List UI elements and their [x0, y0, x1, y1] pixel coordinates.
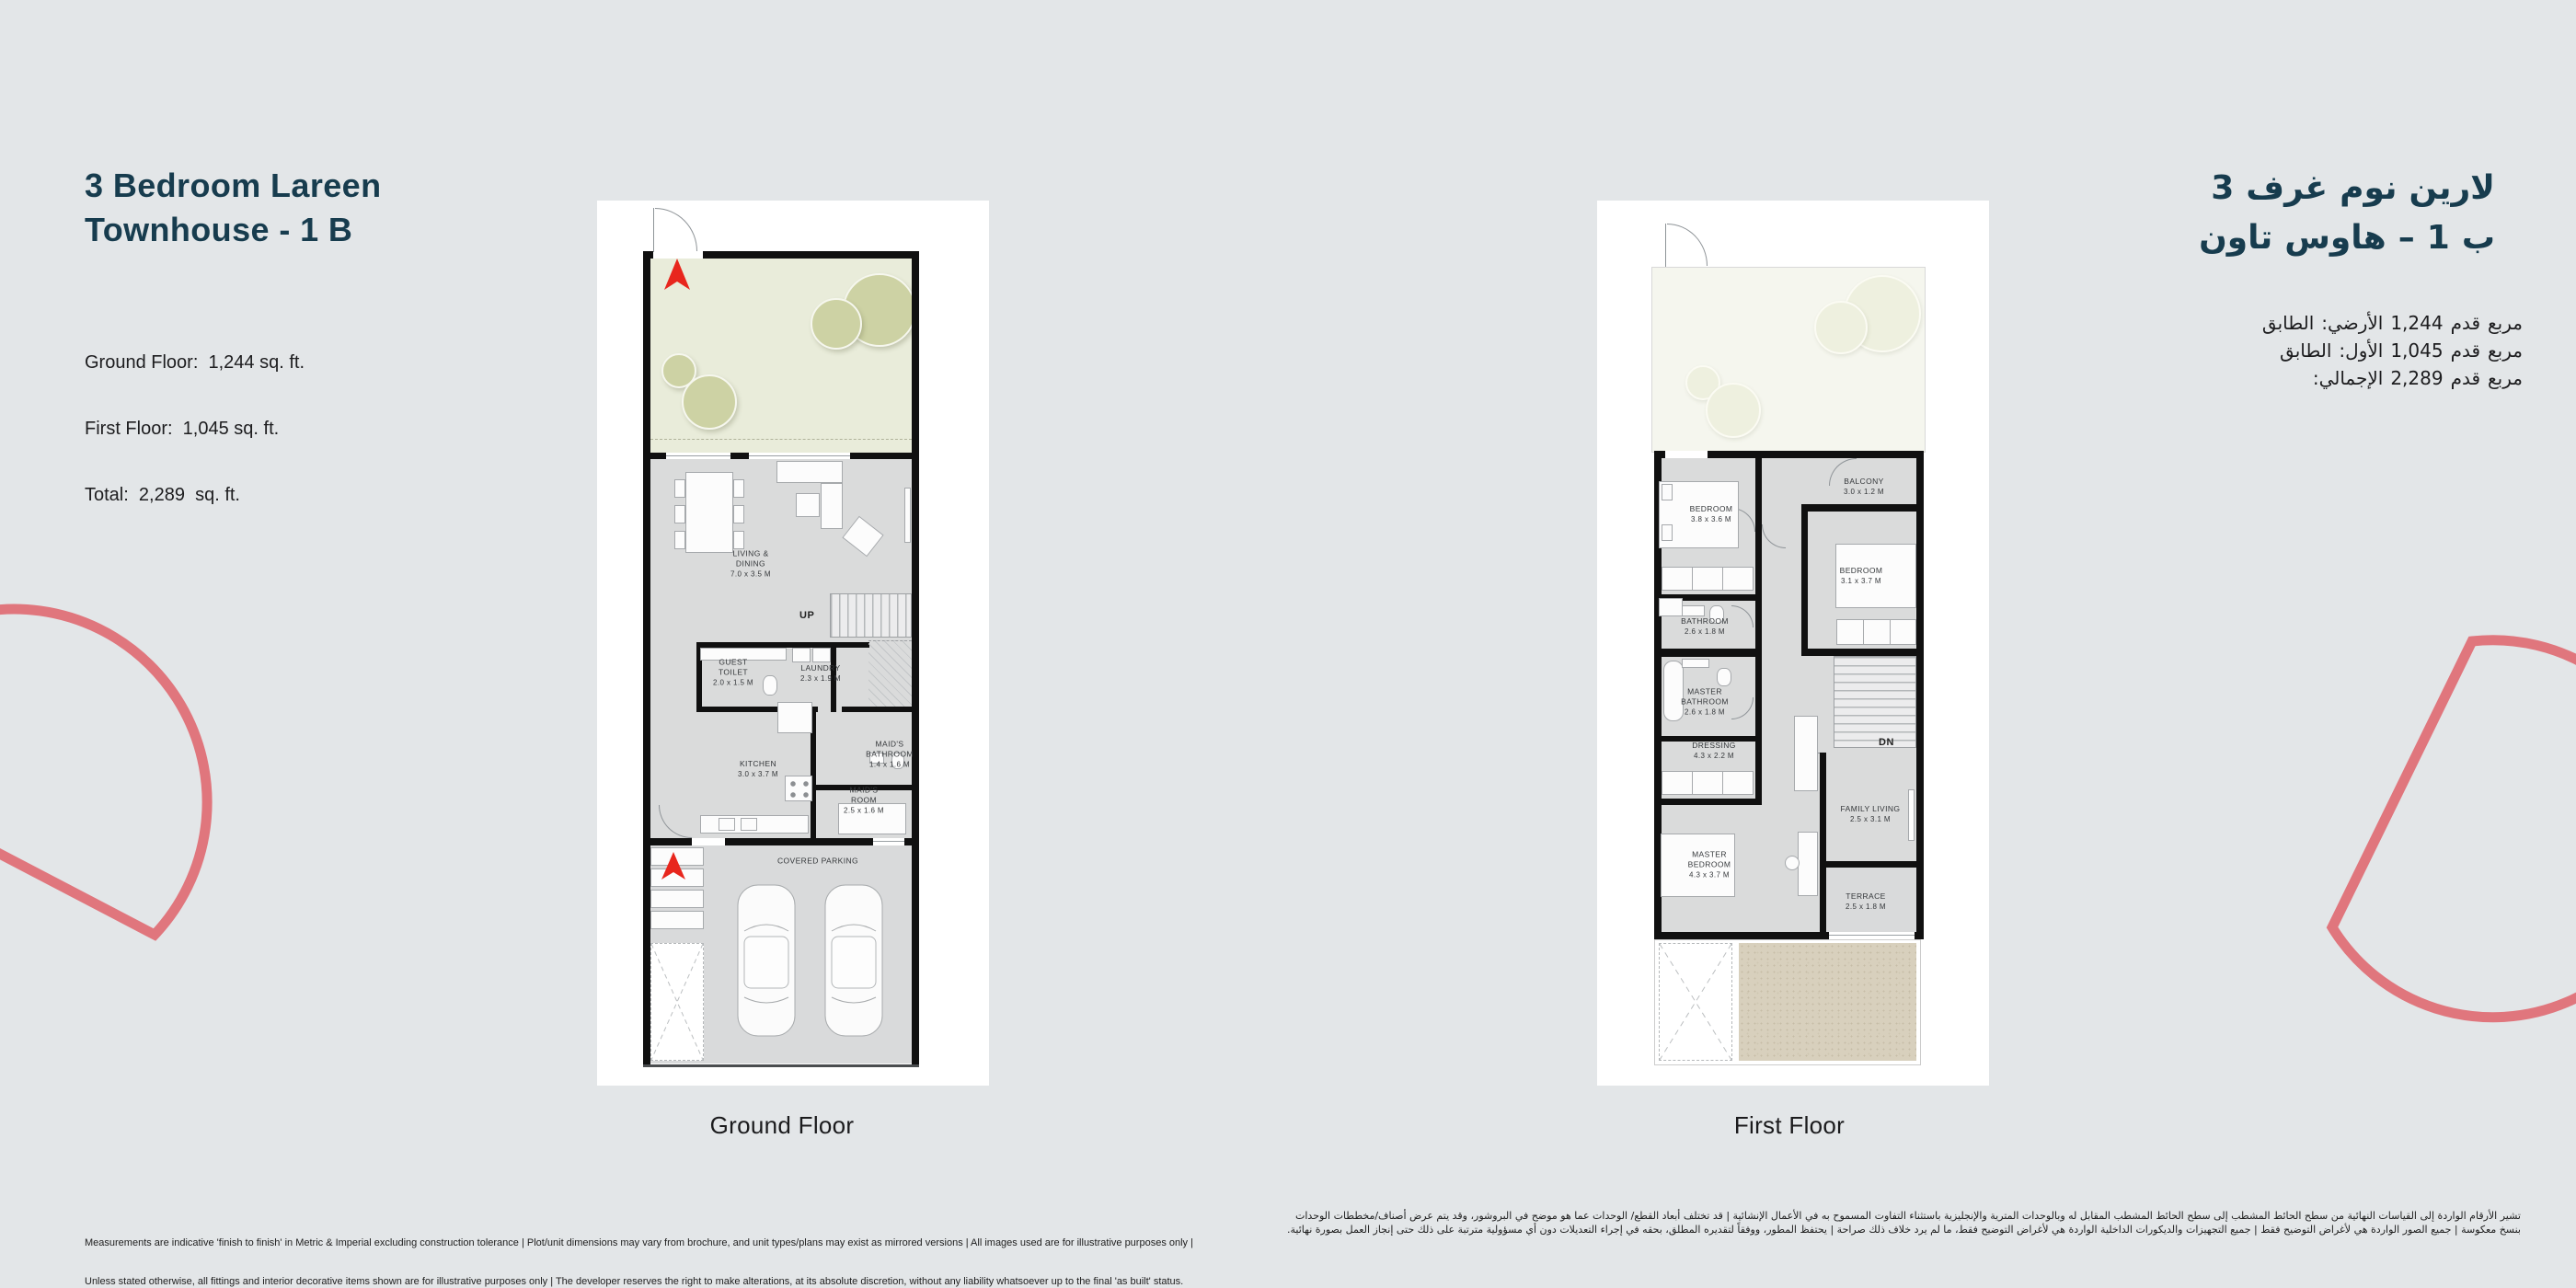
ar-word: الطابق [2280, 337, 2331, 364]
room-label-kitchen: KITCHEN 3.0 x 3.7 M [729, 759, 788, 779]
under-stairs-storage [868, 640, 912, 707]
cross-marks [1660, 944, 1731, 1060]
door-gap [692, 838, 725, 845]
room-label-laundry: LAUNDRY 2.3 x 1.9 M [791, 663, 850, 684]
wall [1801, 504, 1924, 512]
room-label-dressing: DRESSING 4.3 x 2.2 M [1685, 741, 1743, 761]
wall [1801, 512, 1808, 649]
ar-word: مربع [2488, 309, 2523, 337]
area-summary-en: Ground Floor: 1,244 sq. ft. First Floor:… [85, 307, 305, 550]
disclaimer-ar: تشير الأرقام الواردة إلى القياسات النهائ… [1287, 1209, 2521, 1236]
room-label-bedroom-2: BEDROOM 3.1 x 3.7 M [1832, 566, 1891, 586]
cross-marks [651, 944, 703, 1060]
room-name: LIVING & DINING [721, 549, 780, 569]
ar-word: هاوس [2284, 213, 2386, 263]
room-label-covered-parking: COVERED PARKING [767, 857, 868, 867]
room-name: FAMILY LIVING [1841, 804, 1901, 814]
wardrobe [1836, 619, 1916, 645]
chair [733, 531, 744, 549]
brochure-page: 3 Bedroom Lareen Townhouse - 1 B Ground … [0, 0, 2576, 1288]
ar-word: مربع [2488, 364, 2523, 392]
room-dims: 2.5 x 1.6 M [844, 806, 884, 816]
ar-word: 1 [2427, 213, 2450, 263]
ar-word: 2,289 [2390, 364, 2443, 392]
ar-word: – [2398, 213, 2415, 263]
room-dims: 3.0 x 1.2 M [1844, 487, 1884, 497]
pillow [1662, 484, 1673, 500]
area-ground-en: Ground Floor: 1,244 sq. ft. [85, 351, 305, 374]
wall [912, 251, 919, 1067]
room-dims: 3.8 x 3.6 M [1691, 514, 1731, 524]
room-dims: 2.3 x 1.9 M [800, 673, 841, 684]
chair [1785, 856, 1800, 870]
sink [719, 818, 735, 831]
window [749, 453, 850, 459]
room-dims: 1.4 x 1.6 M [869, 760, 910, 770]
room-dims: 2.6 x 1.8 M [1685, 707, 1725, 718]
step [650, 890, 704, 908]
room-dims: 7.0 x 3.5 M [730, 569, 771, 580]
door-gap [818, 707, 842, 712]
void-area [1659, 943, 1732, 1061]
tree-icon [682, 374, 737, 430]
toilet [763, 675, 777, 696]
room-label-living-dining: LIVING & DINING 7.0 x 3.5 M [721, 549, 780, 580]
ar-word: مربع [2488, 337, 2523, 364]
wall [1654, 799, 1762, 805]
terrace-rail [1829, 932, 1915, 939]
room-name: KITCHEN [740, 759, 776, 769]
room-name: BATHROOM [1681, 616, 1729, 627]
disclaimer-en-line2: Unless stated otherwise, all fittings an… [85, 1275, 1193, 1288]
car [735, 881, 798, 1040]
wall [1820, 753, 1826, 932]
ar-word: 1,045 [2390, 337, 2443, 364]
sink [1682, 659, 1709, 668]
room-label-terrace: TERRACE 2.5 x 1.8 M [1836, 891, 1895, 912]
roof-sand-texture [1739, 943, 1916, 1061]
title-ar-line2: تاون هاوس – 1 ب [2199, 213, 2495, 263]
title-line1: 3 Bedroom Lareen [85, 164, 382, 208]
washing-machine [792, 648, 811, 662]
room-name: MASTER BEDROOM [1682, 850, 1737, 870]
room-name: BEDROOM [1840, 566, 1883, 576]
ar-word: قدم [2451, 337, 2480, 364]
disclaimer-en: Measurements are indicative 'finish to f… [85, 1211, 1193, 1288]
room-label-maids-bathroom: MAID'S BATHROOM 1.4 x 1.6 M [862, 740, 917, 770]
stairs-up [830, 593, 912, 638]
ar-word: لارين [2409, 164, 2495, 213]
disclaimer-en-line1: Measurements are indicative 'finish to f… [85, 1236, 1193, 1249]
ar-word: ب [2462, 213, 2495, 263]
ar-word: نوم [2340, 164, 2397, 213]
wall [1823, 861, 1924, 868]
wall [1801, 649, 1924, 656]
ar-word: قدم [2451, 364, 2480, 392]
title-ar-line1: 3 غرف نوم لارين [2211, 164, 2495, 213]
wall [1654, 649, 1762, 657]
wardrobe [1662, 771, 1754, 795]
chair [733, 505, 744, 523]
room-label-bathroom: BATHROOM 2.6 x 1.8 M [1673, 616, 1737, 637]
room-name: MASTER BATHROOM [1677, 687, 1732, 707]
door-gap [1665, 451, 1708, 458]
room-name: LAUNDRY [800, 663, 840, 673]
stairs-down-label: DN [1879, 737, 1894, 748]
car [822, 881, 885, 1040]
chair [733, 479, 744, 498]
tv-console [904, 488, 911, 543]
pillow [1662, 524, 1673, 541]
area-first-en: First Floor: 1,045 sq. ft. [85, 418, 305, 440]
room-label-bedroom-1: BEDROOM 3.8 x 3.6 M [1682, 504, 1741, 524]
coral-petal-left [0, 609, 207, 935]
ar-word: غرف [2246, 164, 2328, 213]
room-label-master-bedroom: MASTER BEDROOM 4.3 x 3.7 M [1682, 850, 1737, 880]
door-gap [653, 251, 703, 259]
area-summary-ar: الطابق الأرضي: 1,244 قدم مربع الطابق الأ… [2262, 309, 2523, 392]
first-floor-plan-panel: DN [1597, 201, 1989, 1086]
room-dims: 3.0 x 3.7 M [738, 769, 778, 779]
room-label-guest-toilet: GUEST TOILET 2.0 x 1.5 M [707, 658, 759, 688]
plot-boundary [643, 1064, 919, 1067]
room-label-master-bathroom: MASTER BATHROOM 2.6 x 1.8 M [1677, 687, 1732, 718]
chair [674, 479, 685, 498]
desk [1798, 832, 1818, 896]
chair [674, 531, 685, 549]
stove [785, 776, 812, 801]
window [666, 453, 730, 459]
ar-word: الأرضي: [2321, 309, 2383, 337]
title-line2: Townhouse - 1 B [85, 208, 382, 252]
room-name: GUEST TOILET [707, 658, 759, 678]
shower [1659, 598, 1683, 616]
room-dims: 4.3 x 2.2 M [1694, 751, 1734, 761]
dining-table [685, 472, 733, 553]
decorative-coral-shapes [0, 0, 2576, 1288]
room-name: BEDROOM [1690, 504, 1733, 514]
kitchen-island [777, 702, 812, 733]
room-name: TERRACE [1846, 891, 1885, 902]
room-name: MAID'S ROOM [838, 786, 890, 806]
ar-word: قدم [2451, 309, 2480, 337]
room-name: COVERED PARKING [777, 857, 858, 867]
disclaimer-ar-line1: تشير الأرقام الواردة إلى القياسات النهائ… [1287, 1209, 2521, 1223]
room-name: MAID'S BATHROOM [862, 740, 917, 760]
area-total-en: Total: 2,289 sq. ft. [85, 484, 305, 506]
room-name: BALCONY [1844, 477, 1883, 487]
first-floor-caption: First Floor [1697, 1111, 1881, 1140]
page-title-ar: 3 غرف نوم لارين تاون هاوس – 1 ب [2199, 164, 2495, 263]
room-dims: 2.0 x 1.5 M [713, 678, 753, 688]
room-name: DRESSING [1692, 741, 1736, 751]
ar-word: 1,244 [2390, 309, 2443, 337]
entry-arrow-icon [661, 852, 685, 880]
ar-word: 3 [2211, 164, 2234, 213]
sink [741, 818, 757, 831]
tree-icon [1706, 383, 1761, 438]
door-arc [655, 208, 697, 251]
page-title-en: 3 Bedroom Lareen Townhouse - 1 B [85, 164, 382, 252]
ground-floor-plan-panel: UP [597, 201, 989, 1086]
garden-below-faded [1651, 267, 1926, 453]
ar-word: الإجمالي: [2313, 364, 2383, 392]
disclaimer-ar-line2: بنسخ معكوسة | جميع الصور الواردة هي لأغر… [1287, 1223, 2521, 1236]
door-arc [1667, 224, 1708, 266]
area-ground-ar: الطابق الأرضي: 1,244 قدم مربع [2262, 309, 2523, 337]
room-label-family-living: FAMILY LIVING 2.5 x 3.1 M [1829, 804, 1912, 824]
wall [1755, 458, 1762, 805]
room-dims: 2.5 x 3.1 M [1850, 814, 1891, 824]
area-first-ar: الطابق الأول: 1,045 قدم مربع [2280, 337, 2523, 364]
stairs-down [1834, 656, 1916, 748]
garden-dash-line [650, 439, 912, 440]
sofa [821, 483, 843, 529]
coffee-table [796, 493, 820, 517]
wardrobe [1662, 567, 1754, 591]
sofa [776, 461, 843, 483]
room-label-balcony: BALCONY 3.0 x 1.2 M [1834, 477, 1893, 497]
ar-word: الأول: [2339, 337, 2383, 364]
ground-floor-caption: Ground Floor [690, 1111, 874, 1140]
washing-machine [812, 648, 831, 662]
ar-word: الطابق [2262, 309, 2314, 337]
storage-void [650, 943, 704, 1061]
room-label-maids-room: MAID'S ROOM 2.5 x 1.6 M [838, 786, 890, 816]
toilet [1717, 668, 1731, 686]
stairs-up-label: UP [799, 610, 814, 621]
ar-word: تاون [2199, 213, 2272, 263]
room-dims: 3.1 x 3.7 M [1841, 576, 1881, 586]
tree-icon [811, 298, 862, 350]
coral-petal-right [2332, 640, 2576, 1018]
north-arrow-icon [664, 259, 690, 290]
room-dims: 2.6 x 1.8 M [1685, 627, 1725, 637]
sofa [1794, 716, 1818, 791]
wall [643, 251, 650, 1067]
area-total-ar: الإجمالي: 2,289 قدم مربع [2313, 364, 2523, 392]
window [873, 838, 904, 845]
step [650, 911, 704, 929]
chair [674, 505, 685, 523]
room-dims: 4.3 x 3.7 M [1689, 870, 1730, 880]
room-dims: 2.5 x 1.8 M [1846, 902, 1886, 912]
tree-icon [1814, 301, 1868, 354]
